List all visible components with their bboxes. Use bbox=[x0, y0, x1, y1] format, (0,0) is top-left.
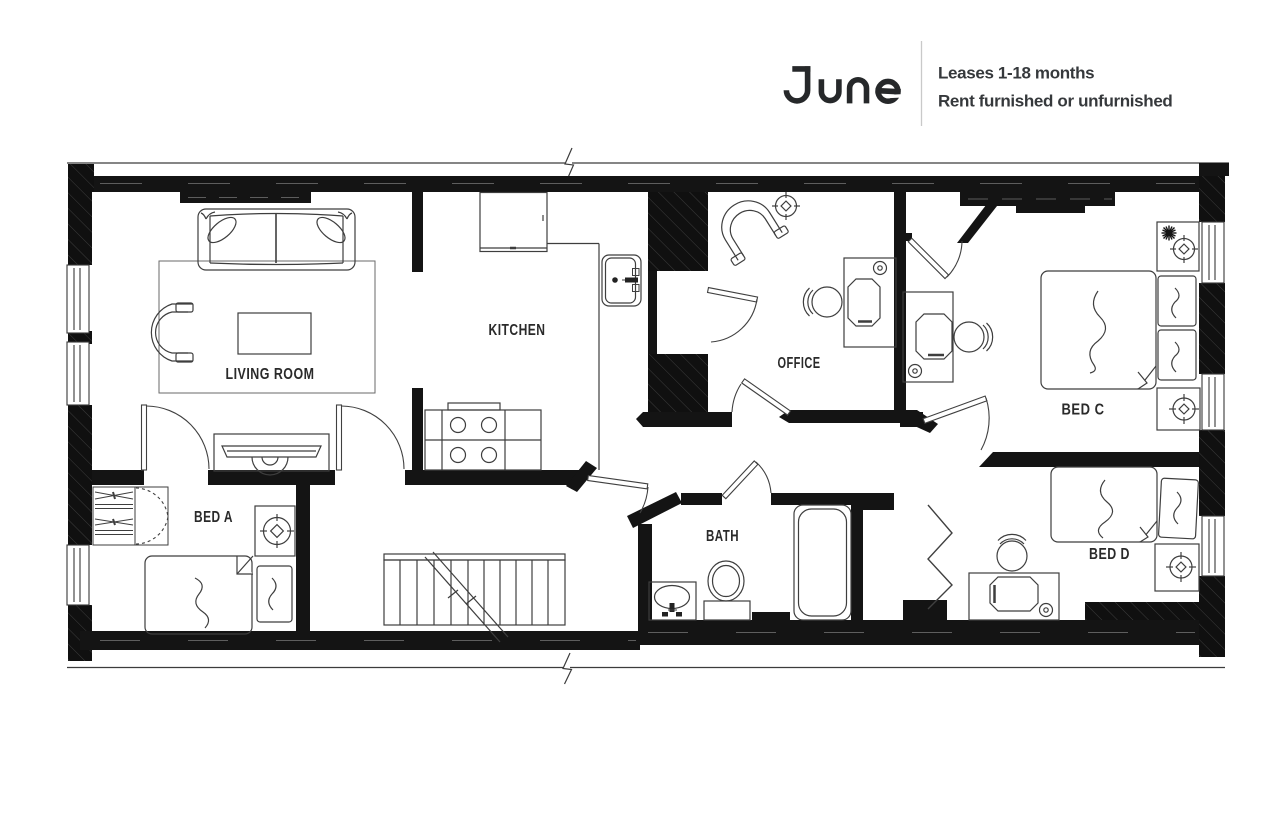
svg-text:BATH: BATH bbox=[706, 528, 739, 545]
svg-text:OFFICE: OFFICE bbox=[778, 355, 821, 372]
svg-text:KITCHEN: KITCHEN bbox=[489, 322, 546, 339]
svg-text:BED A: BED A bbox=[194, 509, 233, 526]
svg-text:LIVING ROOM: LIVING ROOM bbox=[226, 366, 315, 383]
svg-text:BED D: BED D bbox=[1089, 546, 1130, 563]
svg-text:BED C: BED C bbox=[1062, 402, 1105, 419]
svg-text:Rent furnished or unfurnished: Rent furnished or unfurnished bbox=[938, 92, 1172, 111]
svg-text:Leases 1-18 months: Leases 1-18 months bbox=[938, 64, 1094, 83]
